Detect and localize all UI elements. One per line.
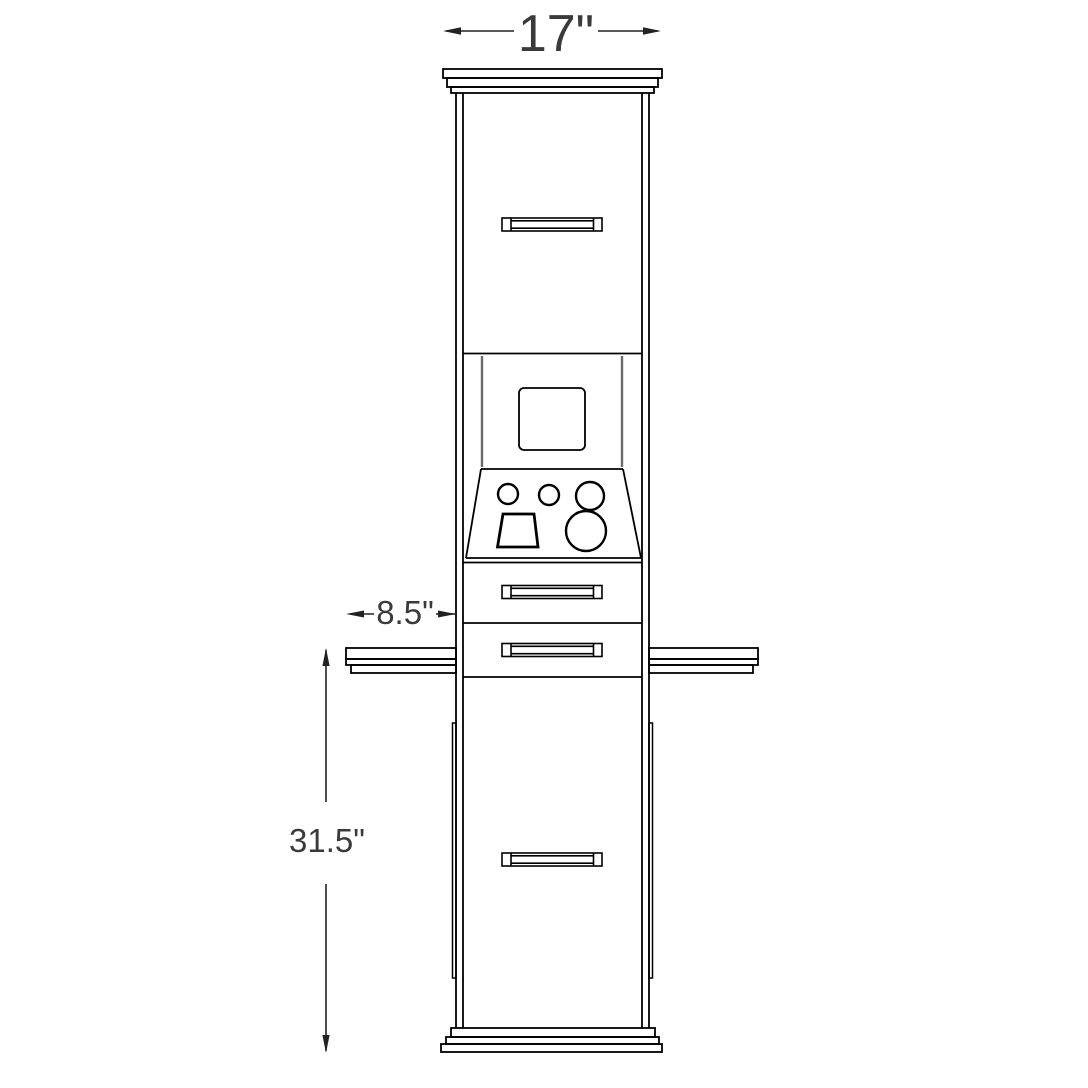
screen-panel bbox=[519, 388, 585, 450]
side-panel-right bbox=[649, 723, 653, 978]
knob-small-2 bbox=[539, 485, 559, 505]
panel-left-slope bbox=[466, 469, 481, 558]
drawer-1-handle bbox=[502, 586, 602, 599]
counter-depth-label: 8.5" bbox=[376, 594, 434, 631]
counter-right-lower-band bbox=[649, 665, 753, 673]
counter-right-mid-band bbox=[649, 659, 758, 665]
dimension-top-width: 17" bbox=[443, 5, 661, 63]
crown-molding bbox=[443, 69, 662, 93]
drawer-stack bbox=[463, 563, 642, 678]
counter-left-lower-band bbox=[351, 665, 456, 673]
cabinet-line-drawing: 17" bbox=[0, 0, 1088, 1088]
crown-tier-3 bbox=[451, 87, 654, 93]
dimension-counter-depth: 8.5" bbox=[346, 594, 456, 631]
cabinet-frame bbox=[456, 93, 649, 1028]
dimension-counter-height: 31.5" bbox=[289, 648, 365, 1053]
counter-left-top-slab bbox=[346, 648, 456, 659]
drawer-2-handle bbox=[502, 644, 602, 657]
keypad-button bbox=[498, 514, 539, 547]
arrowhead-left-icon bbox=[443, 27, 461, 35]
screen-recess bbox=[482, 356, 622, 467]
knob-large bbox=[566, 511, 606, 551]
upper-door bbox=[463, 218, 642, 354]
counter-height-label: 31.5" bbox=[289, 822, 365, 859]
base-tier-1 bbox=[451, 1028, 655, 1037]
crown-tier-2 bbox=[447, 78, 658, 87]
crown-tier-1 bbox=[443, 69, 662, 78]
arrowhead-right-icon bbox=[643, 27, 661, 35]
arrowhead-down-icon bbox=[322, 1035, 329, 1053]
counter-right-top-slab bbox=[649, 648, 758, 659]
upper-door-handle bbox=[502, 218, 602, 231]
knob-small-1 bbox=[498, 484, 518, 504]
knob-medium bbox=[576, 482, 604, 510]
counter-right bbox=[649, 648, 758, 673]
lower-door-handle bbox=[502, 853, 602, 866]
base-tier-2 bbox=[446, 1037, 659, 1044]
dimension-drawing-canvas: 17" bbox=[0, 0, 1088, 1088]
control-panel bbox=[466, 469, 641, 558]
panel-right-slope bbox=[623, 469, 641, 558]
arrowhead-up-icon bbox=[322, 648, 329, 666]
top-width-label: 17" bbox=[518, 5, 594, 63]
counter-left-mid-band bbox=[346, 659, 456, 665]
base-plinth bbox=[441, 1028, 662, 1052]
lower-door bbox=[453, 723, 653, 978]
base-tier-3 bbox=[441, 1044, 662, 1052]
side-panel-left bbox=[453, 723, 457, 978]
arrowhead-right-icon bbox=[438, 611, 456, 618]
counter-left bbox=[346, 648, 456, 673]
arrowhead-left-icon bbox=[346, 611, 364, 618]
